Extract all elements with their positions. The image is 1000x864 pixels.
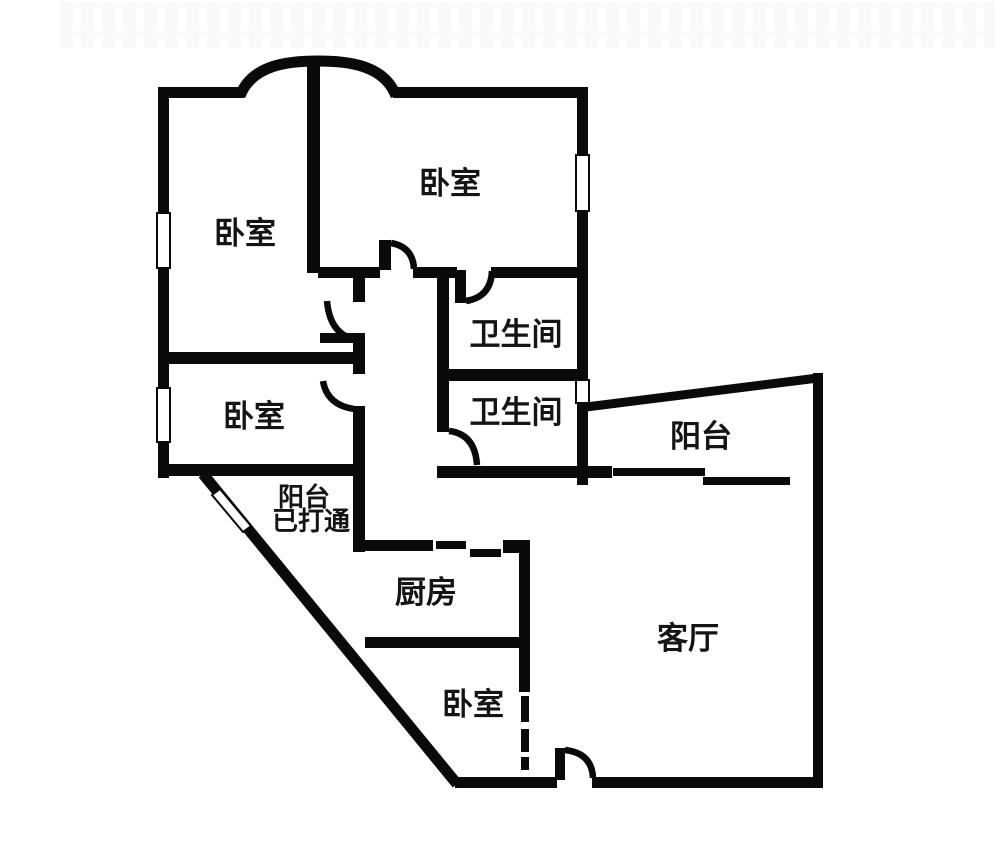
- wall-bedroom-partition: [307, 62, 320, 273]
- wall-corridor-left-a: [353, 271, 365, 302]
- wall-left-bedrooms-divider: [158, 352, 354, 364]
- wall-bathrooms-divider: [437, 369, 588, 381]
- room-label-living-room: 客厅: [657, 623, 719, 654]
- wall-kitchen-bottom: [365, 637, 525, 648]
- wall-kitchen-top: [353, 540, 433, 551]
- dash-kitchen-right-1: [521, 696, 529, 722]
- window-left-upper: [157, 213, 170, 268]
- wall-mid-bedroom-bottom: [158, 464, 354, 476]
- door-leaf-entrance: [555, 748, 565, 780]
- wall-outer-right-upper: [577, 87, 588, 485]
- wall-unit-bottom-left: [455, 777, 557, 788]
- wall-bathrooms-bottom: [437, 466, 612, 478]
- floor-plan-drawing: [0, 0, 1000, 864]
- door-leaf-bedroom-top-right: [379, 240, 391, 270]
- window-diagonal: [212, 489, 251, 532]
- wall-corridor-right: [437, 267, 449, 432]
- room-label-bedroom-top-left: 卧室: [214, 218, 276, 249]
- dash-balcony-living-2: [703, 477, 790, 485]
- room-label-bathroom-upper: 卫生间: [470, 319, 563, 350]
- room-label-bedroom-mid-left: 卧室: [223, 401, 285, 432]
- door-arc-bedroom-mid-left: [323, 381, 354, 409]
- room-label-kitchen: 厨房: [395, 577, 457, 608]
- wall-living-right: [813, 373, 823, 788]
- door-arc-bathroom-lower: [449, 431, 477, 465]
- door-arc-entrance: [565, 750, 593, 778]
- door-leaf-bathroom-upper: [455, 270, 466, 303]
- dashed-openings: [436, 468, 790, 770]
- room-label-bedroom-top-right: 卧室: [419, 168, 481, 199]
- wall-bedroom2-bottom-c: [491, 267, 579, 278]
- wall-unit-bottom-right: [592, 777, 823, 788]
- dash-kitchen-right-3: [521, 757, 529, 770]
- floor-plan: 卧室 卧室 卫生间 卫生间 卧室 阳台 阳台 已打通 厨房 客厅 卧室: [0, 0, 1000, 864]
- wall-balcony-slant: [586, 378, 818, 407]
- wall-bedroom2-bottom-b: [413, 267, 457, 278]
- window-left-lower: [157, 388, 170, 442]
- dash-kitchen-top-1: [436, 541, 466, 549]
- window-right-bathroom: [576, 380, 589, 403]
- wall-top-right: [393, 87, 588, 98]
- door-arc-bedroom-top-right: [391, 243, 414, 269]
- door-arc-bathroom-upper: [466, 271, 492, 301]
- wall-bedroom2-bottom-a: [318, 267, 380, 278]
- dash-balcony-living-1: [613, 468, 705, 476]
- room-label-bathroom-lower: 卫生间: [470, 397, 563, 428]
- dash-kitchen-top-2: [470, 549, 501, 557]
- room-label-balcony-left-opened: 已打通: [272, 508, 350, 534]
- window-right-bedroom: [576, 155, 589, 211]
- room-label-bedroom-bottom: 卧室: [442, 689, 504, 720]
- wall-kitchen-right: [519, 540, 530, 692]
- room-label-balcony-right: 阳台: [670, 421, 732, 452]
- wall-corridor-left-c: [353, 406, 365, 552]
- wall-top-left: [158, 87, 244, 98]
- dash-kitchen-right-2: [521, 729, 529, 752]
